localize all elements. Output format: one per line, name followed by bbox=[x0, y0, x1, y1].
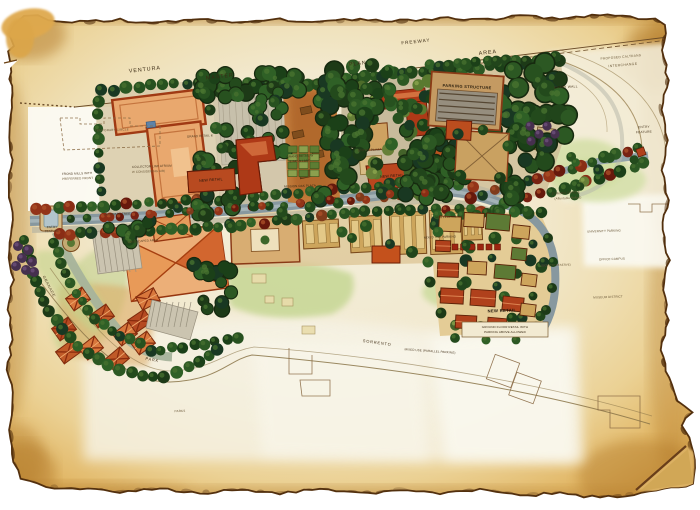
svg-text:NEW FEDERAL: NEW FEDERAL bbox=[435, 215, 457, 220]
svg-text:ENTRY: ENTRY bbox=[638, 125, 651, 130]
svg-text:PARKS: PARKS bbox=[174, 409, 185, 413]
svg-text:FEATURE: FEATURE bbox=[636, 130, 652, 135]
svg-text:PARKING ABOVE ALLOWED: PARKING ABOVE ALLOWED bbox=[484, 330, 526, 334]
svg-text:FEATURE: FEATURE bbox=[45, 229, 60, 234]
svg-text:NEW RETAIL: NEW RETAIL bbox=[487, 307, 516, 313]
svg-text:GROUND FLOOR RETAIL WITH: GROUND FLOOR RETAIL WITH bbox=[482, 325, 528, 329]
